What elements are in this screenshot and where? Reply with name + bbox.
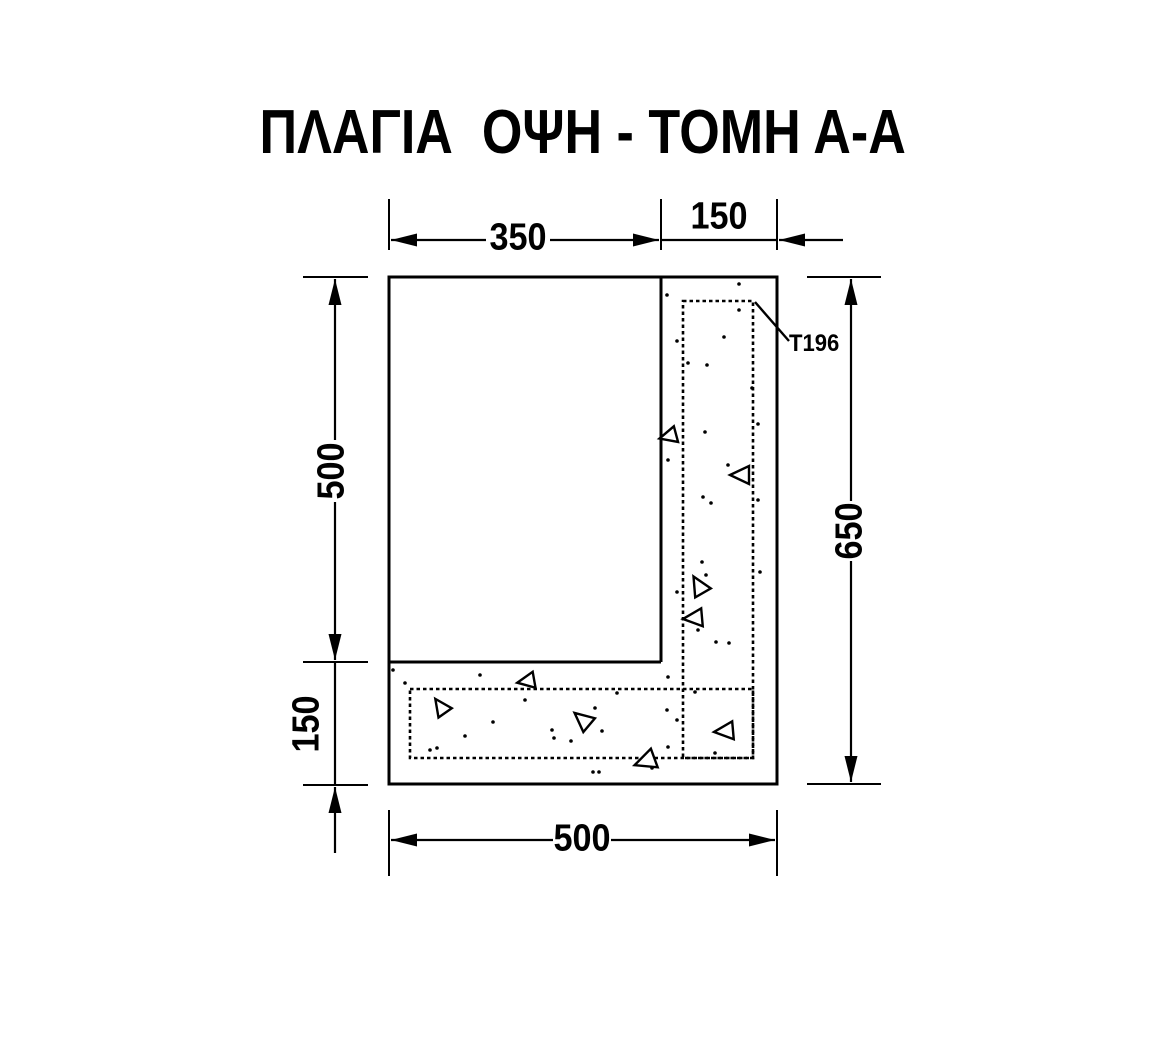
concrete-dot (726, 463, 730, 467)
aggregate-triangle (730, 466, 749, 484)
dim-label-right-650: 650 (829, 502, 872, 559)
concrete-dot (428, 748, 432, 752)
aggregate-triangle (569, 706, 595, 732)
concrete-dot (675, 590, 679, 594)
concrete-dot (665, 293, 669, 297)
concrete-dot (597, 770, 601, 774)
aggregate-triangle (429, 694, 452, 717)
concrete-dot (714, 640, 718, 644)
concrete-dot (693, 690, 697, 694)
concrete-dot (491, 720, 495, 724)
drawing-sheet: ΠΛΑΓΙΑ ΟΨΗ - ΤΟΜΗ Α-Α (0, 0, 1165, 1055)
aggregate-triangle (516, 672, 536, 691)
dim-left-150 (329, 662, 342, 853)
dim-label-left-150: 150 (286, 695, 329, 752)
dim-label-left-500: 500 (311, 442, 354, 499)
concrete-dot (615, 691, 619, 695)
concrete-dot (700, 560, 704, 564)
concrete-dot (550, 728, 554, 732)
mesh-type-label: T196 (789, 330, 839, 358)
dim-top-150 (661, 234, 843, 247)
concrete-dot (523, 698, 527, 702)
concrete-dot (675, 718, 679, 722)
concrete-dot (756, 422, 760, 426)
concrete-dot (727, 641, 731, 645)
concrete-dot (591, 770, 595, 774)
concrete-dot (722, 335, 726, 339)
concrete-dot (666, 675, 670, 679)
aggregate-triangle (631, 749, 657, 775)
concrete-aggregate-triangles (429, 426, 749, 774)
aggregate-triangle (713, 721, 733, 741)
concrete-dot (478, 673, 482, 677)
concrete-dot (703, 430, 707, 434)
dim-label-top-150: 150 (690, 196, 747, 239)
concrete-dot (666, 458, 670, 462)
concrete-dot (750, 386, 754, 390)
concrete-dot (758, 570, 762, 574)
concrete-dot (435, 746, 439, 750)
concrete-dot (665, 708, 669, 712)
concrete-dot (696, 628, 700, 632)
concrete-dot (704, 573, 708, 577)
concrete-dot (391, 668, 395, 672)
mesh-leader-line (755, 302, 789, 341)
technical-drawing (0, 0, 1165, 1055)
concrete-dot (705, 363, 709, 367)
concrete-dot (593, 706, 597, 710)
aggregate-triangle (682, 608, 702, 628)
concrete-dot (713, 751, 717, 755)
concrete-dot (463, 734, 467, 738)
concrete-dot (569, 739, 573, 743)
concrete-dot (737, 308, 741, 312)
concrete-dot (701, 495, 705, 499)
concrete-dot (403, 681, 407, 685)
concrete-dot (709, 501, 713, 505)
concrete-dot (552, 736, 556, 740)
concrete-dot (686, 361, 690, 365)
concrete-dot (737, 282, 741, 286)
concrete-dot (666, 745, 670, 749)
dim-label-bottom-500: 500 (553, 818, 610, 861)
concrete-dot (675, 339, 679, 343)
dim-label-top-350: 350 (489, 217, 546, 260)
concrete-dot (756, 498, 760, 502)
concrete-dot (600, 729, 604, 733)
concrete-dots-texture (391, 282, 762, 774)
